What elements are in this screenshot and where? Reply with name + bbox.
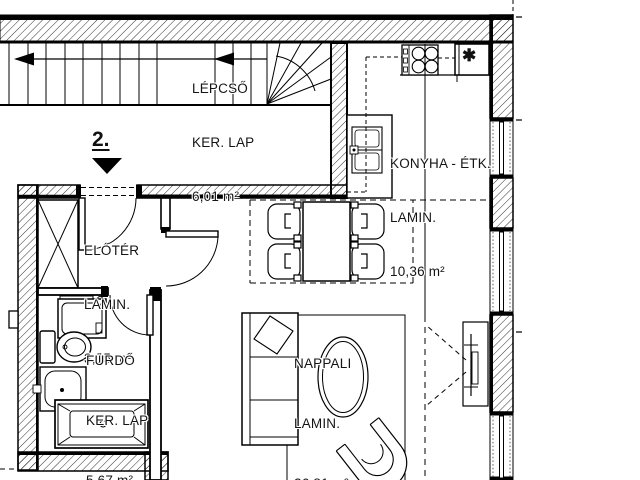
stairwell-right-wall: [331, 43, 347, 198]
room-area: 5,67 m²: [86, 471, 148, 480]
unit-number-label: 2.: [92, 128, 110, 152]
room-label-kitchen: KONYHA - ÉTK. LAMIN. 10,36 m²: [390, 119, 491, 299]
wardrobe: [38, 200, 78, 288]
dining-chair: [351, 202, 384, 241]
room-finish: KER. LAP: [86, 411, 148, 431]
room-name: FÜRDŐ: [86, 351, 148, 371]
kitchen-sink: [347, 115, 392, 198]
sofa: [242, 313, 298, 445]
room-label-staircase: LÉPCSŐ KER. LAP 6,01 m²: [192, 44, 254, 224]
top-wall: [0, 15, 513, 43]
window: [490, 118, 513, 178]
room-finish: LAMIN.: [294, 414, 351, 434]
room-finish: KER. LAP: [192, 134, 254, 152]
room-label-living: NAPPALI LAMIN. 26,81 m²: [294, 314, 351, 480]
dining-chair: [268, 202, 301, 241]
wall-pier: [490, 315, 513, 412]
wall-pier: [490, 15, 513, 118]
room-finish: LAMIN.: [390, 209, 491, 227]
room-label-bathroom: FÜRDŐ KER. LAP 5,67 m²: [86, 311, 148, 480]
room-area: 6,01 m²: [192, 188, 254, 206]
wall-pier: [490, 178, 513, 228]
floor-plan: LÉPCSŐ KER. LAP 6,01 m² KONYHA - ÉTK. LA…: [0, 0, 640, 480]
room-name: ELŐTÉR: [84, 242, 139, 260]
wall-notch: [9, 311, 18, 328]
window: [490, 228, 513, 315]
dining-table: [303, 202, 350, 281]
window: [490, 412, 513, 480]
room-name: KONYHA - ÉTK.: [390, 155, 491, 173]
dining-chair: [351, 242, 384, 281]
room-area: 10,36 m²: [390, 263, 491, 281]
room-area: 26,81 m²: [294, 474, 351, 480]
room-name: NAPPALI: [294, 354, 351, 374]
dining-chair: [268, 242, 301, 281]
freezer-icon: ✱: [462, 46, 476, 66]
stove-icon: [402, 45, 438, 75]
hall-wall-stub: [161, 198, 170, 233]
room-name: LÉPCSŐ: [192, 80, 254, 98]
